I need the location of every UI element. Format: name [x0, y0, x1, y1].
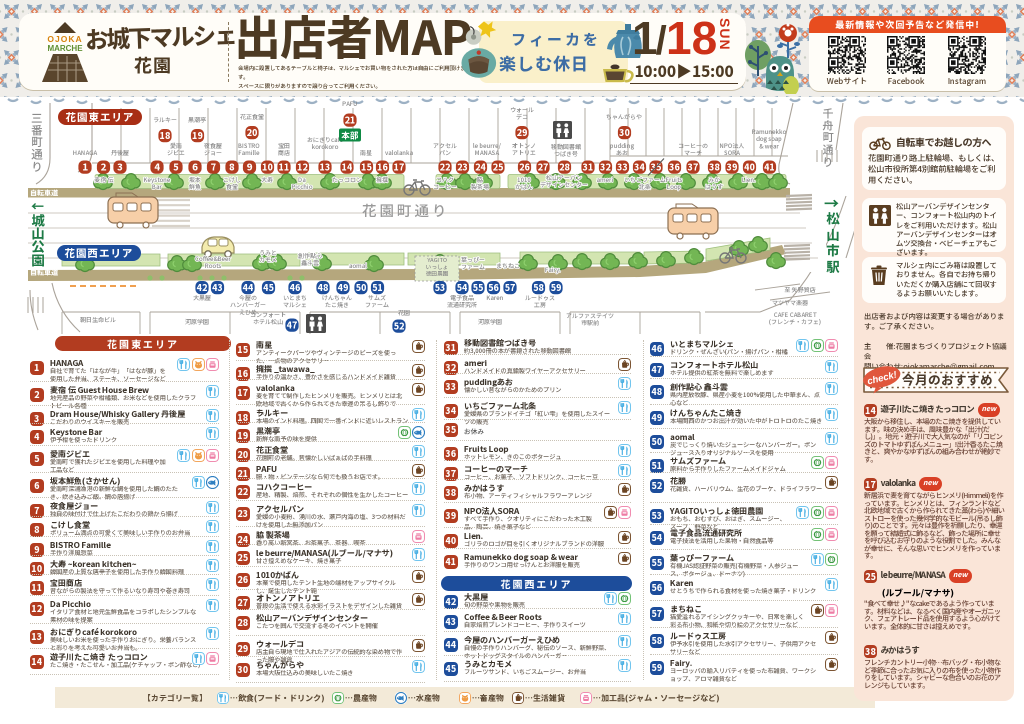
svg-text:かばん: かばん	[515, 182, 533, 191]
svg-text:18: 18	[160, 129, 171, 142]
svg-text:5: 5	[173, 160, 179, 174]
svg-text:44: 44	[243, 281, 254, 294]
svg-text:30: 30	[619, 126, 630, 139]
svg-text:花正食堂: 花正食堂	[240, 112, 264, 121]
svg-text:57: 57	[505, 281, 516, 294]
svg-text:29: 29	[517, 126, 528, 139]
svg-text:33: 33	[617, 161, 628, 174]
svg-text:47: 47	[287, 319, 298, 332]
svg-text:製茶場: 製茶場	[471, 182, 489, 191]
svg-text:Picchio: Picchio	[292, 182, 313, 191]
svg-text:花園西エリア: 花園西エリア	[65, 246, 134, 261]
svg-text:aomal: aomal	[349, 261, 367, 270]
svg-text:32: 32	[600, 161, 611, 174]
svg-text:つばき号: つばき号	[554, 149, 578, 158]
svg-text:マツヤマ楽器: マツヤマ楽器	[772, 298, 809, 307]
svg-text:25: 25	[493, 161, 504, 174]
svg-text:Fairy.: Fairy.	[545, 265, 561, 274]
svg-text:朝日生命ビル: 朝日生命ビル	[80, 315, 116, 324]
svg-text:丹後屋: 丹後屋	[110, 148, 129, 157]
svg-text:黒潮亭: 黒潮亭	[188, 115, 206, 124]
svg-text:デコ: デコ	[516, 112, 528, 121]
svg-text:27: 27	[538, 161, 549, 174]
svg-text:花園東エリア: 花園東エリア	[66, 110, 135, 125]
svg-text:38: 38	[709, 161, 720, 174]
svg-text:14: 14	[342, 161, 353, 174]
svg-text:39: 39	[727, 161, 738, 174]
svg-text:41: 41	[764, 161, 775, 174]
svg-text:12: 12	[297, 161, 308, 174]
svg-text:50: 50	[356, 281, 367, 294]
svg-text:ファーム: ファーム	[365, 300, 389, 309]
svg-text:37: 37	[688, 161, 699, 174]
svg-text:パン: パン	[439, 148, 451, 157]
svg-text:2: 2	[101, 160, 107, 174]
svg-text:ameri: ameri	[597, 175, 614, 184]
svg-text:まちねこ: まちねこ	[496, 261, 520, 270]
svg-text:Famille: Famille	[238, 148, 260, 157]
svg-text:53: 53	[435, 281, 446, 294]
svg-text:北条: 北条	[639, 182, 651, 191]
svg-text:11: 11	[279, 161, 290, 174]
svg-text:松山市駅: 松山市駅	[823, 212, 843, 276]
svg-text:はうす: はうす	[705, 182, 723, 191]
svg-text:17: 17	[394, 161, 405, 174]
svg-text:49: 49	[338, 281, 349, 294]
svg-text:& wear: & wear	[759, 141, 779, 150]
svg-text:河原学園: 河原学園	[184, 317, 209, 326]
svg-text:→: →	[824, 193, 839, 214]
svg-text:56: 56	[488, 281, 499, 294]
svg-text:自転車道: 自転車道	[30, 268, 58, 278]
svg-text:マーチ: マーチ	[684, 148, 702, 157]
svg-text:食堂: 食堂	[225, 182, 238, 191]
svg-text:デザインセンター: デザインセンター	[540, 180, 588, 189]
svg-text:58: 58	[533, 281, 544, 294]
svg-text:7: 7	[211, 160, 217, 174]
svg-text:HANAGA: HANAGA	[73, 148, 98, 157]
svg-text:Lien.: Lien.	[742, 175, 756, 184]
svg-text:大黒屋: 大黒屋	[193, 293, 211, 302]
svg-text:SORA: SORA	[724, 148, 740, 157]
svg-text:本部: 本部	[341, 130, 359, 142]
svg-text:Loop: Loop	[667, 182, 682, 191]
svg-text:アトリエ: アトリエ	[512, 148, 536, 157]
svg-text:(フレンチ・カフェ): (フレンチ・カフェ)	[769, 317, 821, 326]
svg-text:36: 36	[669, 161, 680, 174]
svg-text:大寿: 大寿	[261, 175, 273, 184]
svg-text:3: 3	[117, 160, 123, 174]
svg-text:45: 45	[263, 281, 274, 294]
svg-text:商店: 商店	[278, 148, 291, 157]
svg-text:46: 46	[290, 281, 301, 294]
svg-text:23: 23	[457, 161, 468, 174]
svg-text:ちゃんがらや: ちゃんがらや	[606, 112, 642, 121]
svg-text:あお: あお	[616, 148, 628, 157]
svg-text:26: 26	[519, 161, 530, 174]
svg-text:15: 15	[361, 161, 372, 174]
svg-text:工房: 工房	[533, 300, 546, 309]
svg-text:59: 59	[551, 281, 562, 294]
svg-text:51: 51	[372, 281, 383, 294]
svg-text:40: 40	[744, 161, 755, 174]
svg-text:22: 22	[440, 161, 451, 174]
svg-text:至 矢野質店: 至 矢野質店	[784, 285, 816, 294]
svg-text:31: 31	[583, 161, 594, 174]
svg-text:コーヒー: コーヒー	[433, 182, 457, 191]
svg-text:河原学園: 河原学園	[477, 317, 502, 326]
svg-text:たこ焼き: たこ焼き	[325, 300, 349, 309]
svg-text:20: 20	[247, 126, 258, 139]
svg-text:MANASA: MANASA	[475, 148, 499, 157]
svg-text:21: 21	[345, 114, 356, 127]
svg-text:Karen: Karen	[486, 293, 503, 302]
svg-text:19: 19	[192, 129, 203, 142]
svg-text:52: 52	[394, 320, 405, 333]
svg-text:55: 55	[473, 281, 484, 294]
svg-text:ジビエ: ジビエ	[167, 148, 185, 157]
svg-text:徳田農園: 徳田農園	[426, 270, 449, 278]
svg-text:8: 8	[229, 160, 235, 174]
svg-text:28: 28	[559, 161, 570, 174]
svg-text:valolanka: valolanka	[385, 148, 413, 157]
svg-text:マルシェ: マルシェ	[283, 300, 307, 309]
svg-text:43: 43	[212, 281, 223, 294]
svg-text:Bar: Bar	[152, 182, 162, 191]
svg-text:麦宿 伝: 麦宿 伝	[93, 175, 114, 184]
svg-text:ホテル松山: ホテル松山	[253, 317, 284, 326]
svg-text:10: 10	[262, 161, 273, 174]
svg-text:流通研究所: 流通研究所	[447, 300, 477, 309]
svg-text:城山公園: 城山公園	[28, 213, 48, 267]
svg-text:korokoro: korokoro	[312, 142, 339, 151]
svg-text:54: 54	[457, 281, 468, 294]
svg-text:花園: 花園	[398, 308, 410, 317]
svg-text:今月のおすすめ: 今月のおすすめ	[902, 370, 993, 389]
svg-text:ファーム: ファーム	[461, 262, 485, 271]
svg-text:13: 13	[320, 161, 331, 174]
svg-text:南星: 南星	[359, 148, 372, 157]
svg-text:16: 16	[377, 161, 388, 174]
svg-text:6: 6	[192, 160, 198, 174]
svg-text:42: 42	[197, 281, 208, 294]
svg-text:擁撰: 擁撰	[376, 175, 388, 184]
svg-text:鮮魚: 鮮魚	[188, 182, 202, 191]
svg-text:ジョー: ジョー	[204, 148, 222, 157]
svg-text:花園町通り: 花園町通り	[362, 200, 450, 221]
svg-text:千舟町通り: 千舟町通り	[820, 107, 836, 167]
svg-text:たっコロン: たっコロン	[332, 175, 362, 184]
svg-text:三番町通り: 三番町通り	[29, 112, 45, 172]
svg-text:24: 24	[475, 161, 486, 174]
svg-text:カモメ: カモメ	[259, 255, 277, 264]
svg-text:48: 48	[318, 281, 329, 294]
svg-text:市駅前: 市駅前	[581, 318, 599, 327]
svg-text:鑫斗雲: 鑫斗雲	[301, 258, 319, 267]
svg-text:PAFU: PAFU	[342, 99, 357, 108]
svg-text:ラルキー: ラルキー	[153, 115, 177, 124]
svg-text:9: 9	[247, 160, 253, 174]
svg-text:Roots: Roots	[205, 261, 223, 270]
svg-text:1: 1	[82, 160, 88, 174]
svg-text:34: 34	[634, 161, 645, 174]
